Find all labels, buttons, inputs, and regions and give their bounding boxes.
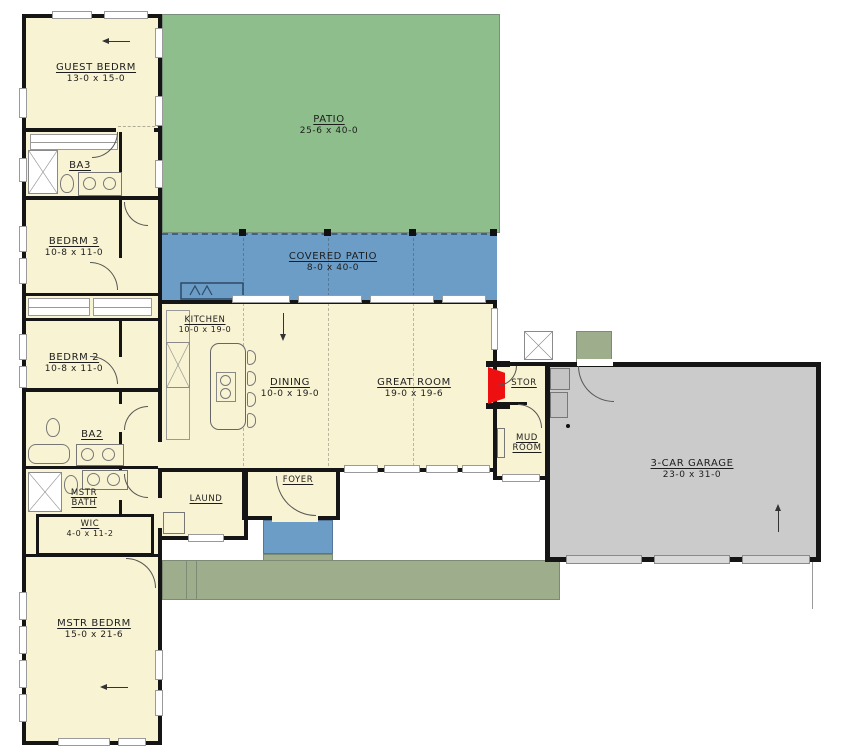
walkway-joint — [196, 560, 197, 600]
patio-post — [490, 229, 497, 236]
sink — [81, 448, 94, 461]
sliding-door — [298, 295, 362, 303]
window — [502, 474, 540, 482]
wall — [22, 318, 162, 321]
sink — [83, 177, 96, 190]
laundry-counter — [163, 512, 185, 534]
window — [155, 28, 163, 58]
window — [19, 626, 27, 654]
window — [19, 592, 27, 620]
window — [19, 226, 27, 252]
fireplace-wall — [486, 403, 510, 409]
hall-wall — [119, 200, 122, 258]
room-label-guest-bedrm: GUEST BEDRM 13-0 x 15-0 — [56, 62, 136, 84]
window — [19, 660, 27, 688]
shower — [28, 150, 58, 194]
bathtub — [28, 444, 70, 464]
entry-porch-step — [263, 554, 333, 561]
window — [155, 690, 163, 716]
room-label-stor: STOR — [511, 378, 537, 388]
driveway-edge — [812, 562, 813, 609]
ceiling-slope-arrow-down-icon — [283, 313, 284, 339]
window — [118, 738, 146, 746]
window — [19, 694, 27, 722]
sliding-door — [370, 295, 434, 303]
hall-wall — [119, 500, 122, 514]
sliding-door — [232, 295, 290, 303]
ceiling-slope-arrow-left-icon — [102, 687, 128, 688]
window — [462, 465, 490, 473]
hall-opening — [158, 498, 162, 528]
walkway-joint — [186, 560, 187, 600]
room-label-mud-room: MUD ROOM — [504, 433, 550, 453]
sink — [220, 375, 231, 386]
walkway — [162, 560, 560, 600]
patio-post — [409, 229, 416, 236]
garage-stoop — [576, 331, 612, 362]
closet — [28, 298, 90, 316]
window — [188, 534, 224, 542]
patio-post — [239, 229, 246, 236]
wall — [22, 196, 162, 200]
room-label-patio: PATIO 25-6 x 40-0 — [300, 114, 359, 136]
window — [155, 96, 163, 126]
room-label-ba2: BA2 — [81, 429, 103, 441]
wall — [22, 388, 162, 392]
room-label-laund: LAUND — [190, 494, 223, 504]
sink — [107, 473, 120, 486]
door-stop-dot — [566, 424, 570, 428]
side-door-opening — [577, 359, 613, 366]
room-label-bedrm3: BEDRM 3 10-8 x 11-0 — [45, 236, 104, 258]
room-label-kitchen: KITCHEN 10-0 x 19-0 — [179, 315, 232, 334]
closet — [93, 298, 152, 316]
sink — [103, 177, 116, 190]
sink — [220, 388, 231, 399]
room-label-garage: 3-CAR GARAGE 23-0 x 31-0 — [651, 458, 734, 480]
window — [426, 465, 458, 473]
window — [58, 738, 110, 746]
toilet — [46, 418, 60, 437]
toilet — [60, 174, 74, 193]
room-label-ba3: BA3 — [69, 160, 91, 172]
attic-dash — [118, 126, 160, 127]
furnace — [550, 368, 570, 390]
room-label-bedrm2: BEDRM 2 10-8 x 11-0 — [45, 352, 104, 374]
garage-door — [566, 555, 642, 564]
shower — [28, 472, 62, 512]
window — [155, 160, 163, 188]
window — [19, 334, 27, 360]
room-label-mstr-bath: MSTR BATH — [63, 488, 105, 508]
window — [491, 308, 498, 350]
water-heater — [550, 392, 568, 418]
chimney-chase — [524, 331, 553, 360]
range — [166, 342, 190, 388]
hall-opening — [158, 442, 162, 468]
window — [344, 465, 378, 473]
ceiling-slope-arrow-up-icon — [778, 506, 779, 532]
entry-porch — [263, 520, 333, 554]
window — [19, 258, 27, 284]
window — [19, 88, 27, 118]
sliding-door — [442, 295, 486, 303]
garage-door — [742, 555, 810, 564]
wall — [242, 468, 245, 520]
window — [384, 465, 420, 473]
sink — [87, 473, 100, 486]
wall — [22, 293, 162, 296]
floor-plan: GUEST BEDRM 13-0 x 15-0 BA3 BEDRM 3 10-8… — [0, 0, 850, 756]
room-label-wic: WIC 4-0 x 11-2 — [66, 519, 113, 538]
sink — [102, 448, 115, 461]
window — [155, 650, 163, 680]
room-label-great-room: GREAT ROOM 19-0 x 19-6 — [377, 377, 451, 399]
front-door-opening — [272, 516, 318, 522]
window — [19, 366, 27, 388]
garage-door — [654, 555, 730, 564]
window — [19, 158, 27, 182]
room-label-foyer: FOYER — [283, 475, 314, 485]
beam-line — [413, 238, 414, 466]
wall — [22, 554, 162, 557]
window — [52, 11, 92, 19]
hall-wall — [119, 321, 122, 357]
room-label-mstr-bedrm: MSTR BEDRM 15-0 x 21-6 — [57, 618, 131, 640]
wall — [22, 466, 162, 469]
ceiling-slope-arrow-left-icon — [104, 41, 130, 42]
hall-wall — [119, 392, 122, 404]
room-label-covered-patio: COVERED PATIO 8-0 x 40-0 — [289, 251, 377, 273]
patio-post — [324, 229, 331, 236]
window — [104, 11, 148, 19]
room-label-dining: DINING 10-0 x 19-0 — [261, 377, 320, 399]
